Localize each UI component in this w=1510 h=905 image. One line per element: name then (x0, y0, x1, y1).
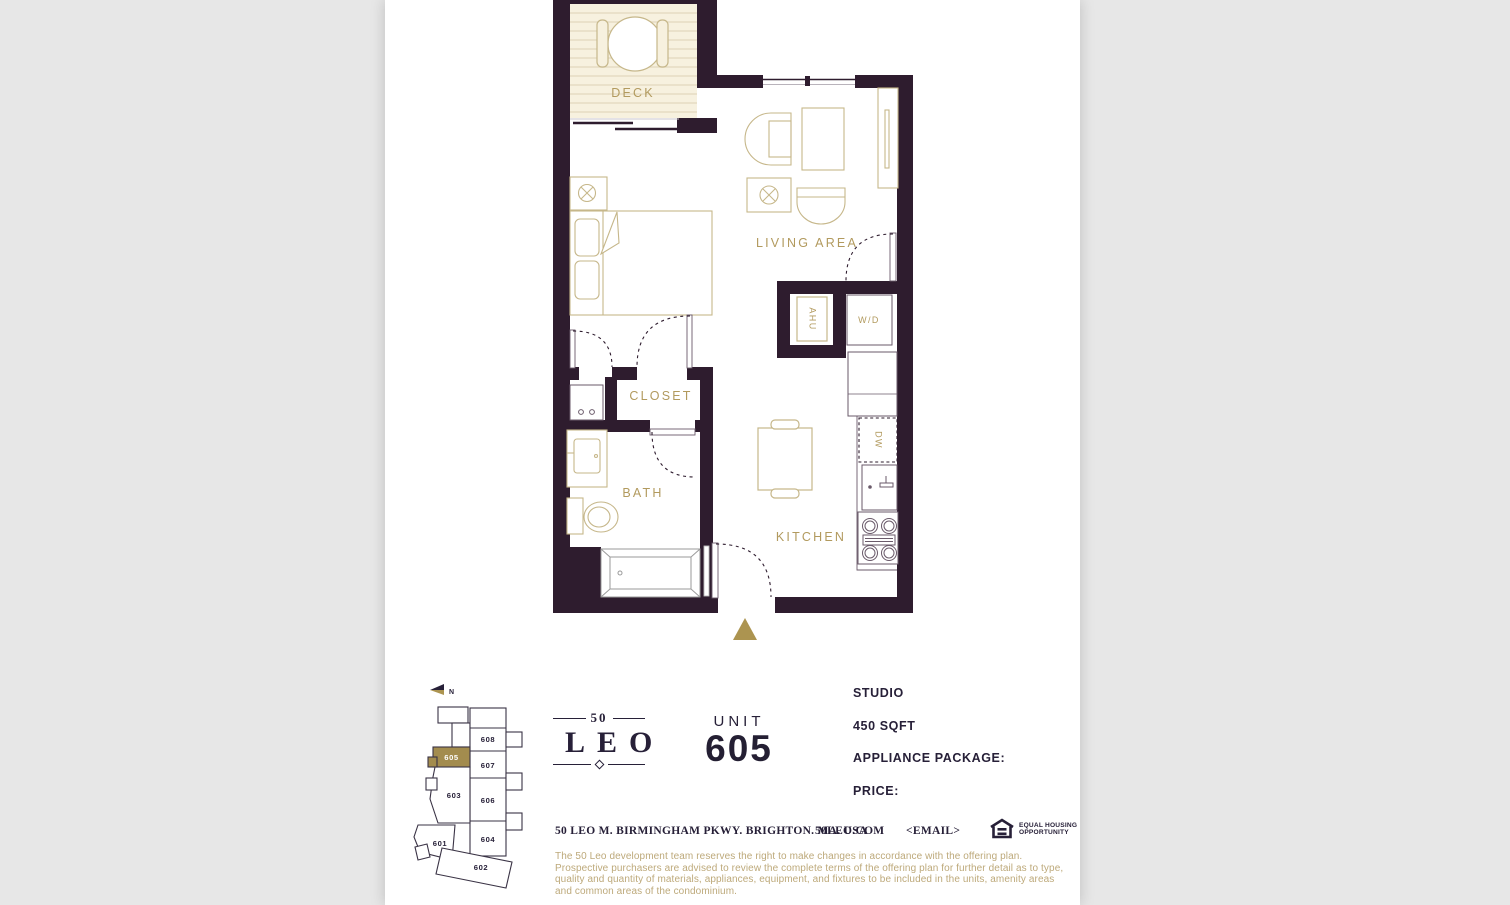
north-arrow: N (430, 684, 454, 696)
logo-name: LEO (553, 727, 645, 759)
logo-rule (553, 764, 591, 765)
svg-text:607: 607 (481, 761, 495, 770)
unit-number: 605 (659, 730, 819, 768)
svg-text:605: 605 (444, 753, 459, 762)
logo-number: 50 (591, 710, 608, 726)
kitchen-label: KITCHEN (776, 530, 846, 544)
building-keyplan: N 608 607 606 604 605 603 60 (412, 682, 527, 894)
closet-door-leaf (570, 330, 575, 368)
logo-rule (553, 718, 586, 719)
stove (858, 512, 898, 564)
equal-housing-logo: EQUAL HOUSING OPPORTUNITY (989, 818, 1077, 840)
dining-table (758, 420, 812, 498)
kitchen-fixtures: DW KITCHEN (758, 352, 898, 570)
svg-text:608: 608 (481, 735, 495, 744)
entry-arrow (733, 618, 757, 640)
hall-cabinet (570, 385, 603, 420)
svg-text:604: 604 (481, 835, 496, 844)
logo-diamond-icon (594, 760, 604, 770)
living-furniture (745, 88, 898, 224)
patio-table (608, 17, 662, 71)
unit-area: 450 SQFT (853, 719, 1005, 733)
toilet-tank (567, 498, 583, 534)
svg-text:N: N (449, 689, 454, 696)
svg-text:601: 601 (433, 839, 448, 848)
svg-text:606: 606 (481, 796, 495, 805)
svg-text:603: 603 (447, 791, 461, 800)
bath-door-leaf (650, 429, 695, 435)
floorplan-sheet: { "colors": { "page_background": "#e7e7e… (0, 0, 1510, 905)
wd-door-leaf (890, 233, 896, 281)
svg-text:DW: DW (874, 431, 884, 449)
bathtub (601, 549, 700, 597)
deck-sliding-door (570, 119, 679, 129)
refrigerator (848, 352, 897, 416)
tv-console (878, 88, 898, 188)
brand-logo: 50 LEO (553, 710, 645, 768)
sheet-page: DECK (385, 0, 1080, 905)
eho-line1: EQUAL HOUSING (1019, 822, 1077, 829)
bedroom-furniture (570, 177, 712, 315)
svg-text:W/D: W/D (858, 315, 880, 325)
deck-area: DECK (570, 3, 697, 118)
bath-label: BATH (622, 486, 663, 500)
eho-line2: OPPORTUNITY (1019, 829, 1077, 836)
svg-text:602: 602 (474, 863, 488, 872)
logo-rule (613, 718, 646, 719)
logo-rule (608, 764, 646, 765)
patio-chair-right (657, 20, 668, 67)
equal-housing-icon (989, 818, 1015, 840)
price-label: PRICE: (853, 784, 1005, 798)
pillow (575, 261, 599, 299)
website-link[interactable]: 50LEO.COM (815, 825, 884, 837)
svg-text:AHU: AHU (808, 307, 818, 330)
closet-door-leaf (687, 315, 692, 368)
entry-door-leaf (712, 543, 718, 598)
pillow (575, 219, 599, 256)
appliance-package-label: APPLIANCE PACKAGE: (853, 751, 1005, 765)
unit-details: STUDIO 450 SQFT APPLIANCE PACKAGE: PRICE… (853, 686, 1005, 816)
living-window (763, 76, 855, 86)
accent-chair (797, 188, 845, 224)
email-link[interactable]: <EMAIL> (906, 825, 960, 837)
patio-chair-left (597, 20, 608, 67)
coffee-table (802, 108, 844, 170)
floorplan-drawing: DECK (553, 0, 914, 645)
closet-label: CLOSET (629, 389, 692, 403)
legal-disclaimer: The 50 Leo development team reserves the… (555, 851, 1069, 897)
unit-type: STUDIO (853, 686, 1005, 700)
living-area-label: LIVING AREA (756, 236, 858, 250)
deck-label: DECK (611, 86, 655, 100)
unit-number-block: UNIT 605 (659, 713, 819, 768)
